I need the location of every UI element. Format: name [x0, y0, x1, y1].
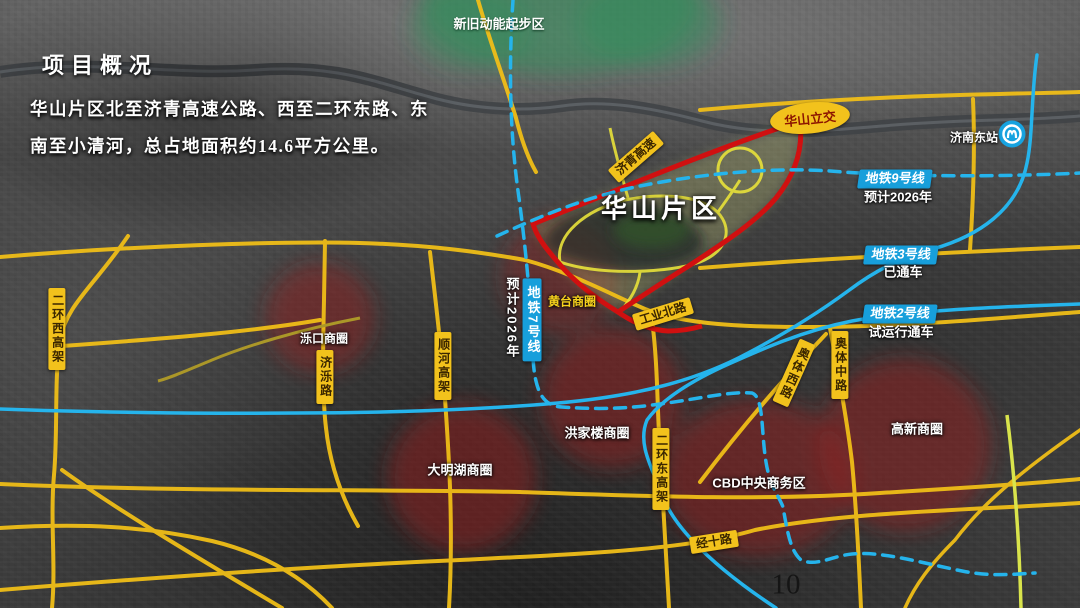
- metro-9-status: 预计2026年: [864, 187, 932, 206]
- slide-canvas: 项目概况 华山片区北至济青高速公路、西至二环东路、东 南至小清河，总占地面积约1…: [0, 0, 1080, 608]
- metro-7-badge: 地铁7号线: [523, 278, 542, 361]
- metro-7-status: 预计2026年: [503, 277, 522, 359]
- huashan-district-label: 华山片区: [601, 189, 721, 226]
- metro-2-status: 试运行通车: [868, 322, 933, 341]
- new-growth-zone-label: 新旧动能起步区: [453, 14, 544, 33]
- overview-text-line-2: 南至小清河，总占地面积约14.6平方公里。: [30, 133, 390, 158]
- road-badge-aotizhonglu: 奥体中路: [831, 331, 848, 399]
- overview-text-line-1: 华山片区北至济青高速公路、西至二环东路、东: [30, 96, 429, 121]
- district-label-daminghu: 大明湖商圈: [427, 460, 492, 479]
- road-badge-shunhe: 顺河高架: [434, 332, 451, 400]
- district-label-luokou: 泺口商圈: [300, 330, 348, 347]
- district-label-cbd: CBD中央商务区: [712, 473, 805, 492]
- jinan-east-station-label: 济南东站: [950, 129, 998, 146]
- district-label-hongjialou: 洪家楼商圈: [564, 423, 629, 442]
- metro-3-status: 已通车: [883, 262, 922, 281]
- page-title: 项目概况: [42, 48, 158, 80]
- district-label-gaoxin: 高新商圈: [891, 419, 943, 438]
- page-number: 10: [772, 569, 801, 602]
- district-label-huangtai: 黄台商圈: [548, 293, 596, 310]
- road-badge-jiluolu: 济泺路: [316, 350, 333, 404]
- road-badge-erhuanxi: 二环西高架: [48, 288, 65, 370]
- road-badge-erhuandong: 二环东高架: [652, 428, 669, 510]
